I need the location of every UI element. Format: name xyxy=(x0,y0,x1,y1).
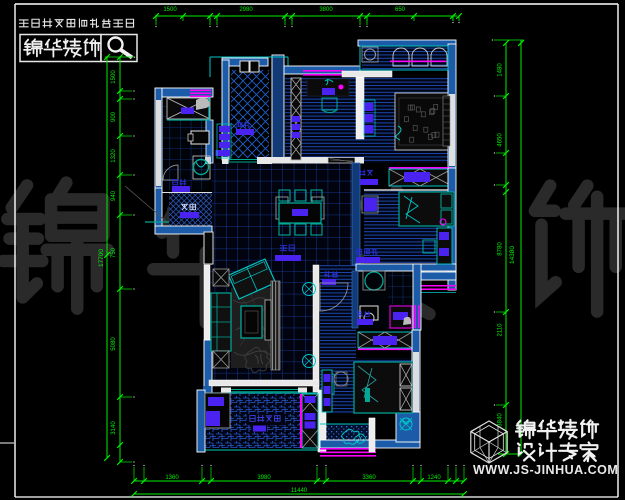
svg-text:1500: 1500 xyxy=(111,70,117,84)
svg-text:3360: 3360 xyxy=(362,475,376,481)
svg-text:3140: 3140 xyxy=(111,421,117,435)
svg-text:1480: 1480 xyxy=(498,63,504,77)
svg-text:2980: 2980 xyxy=(239,7,253,13)
svg-text:5080: 5080 xyxy=(111,337,117,351)
svg-text:14380: 14380 xyxy=(509,246,516,264)
svg-text:2110: 2110 xyxy=(498,323,504,337)
svg-text:17700: 17700 xyxy=(98,249,105,267)
svg-text:8780: 8780 xyxy=(498,242,504,256)
svg-text:900: 900 xyxy=(111,111,117,122)
svg-text:1500: 1500 xyxy=(163,7,177,13)
svg-text:4650: 4650 xyxy=(498,133,504,147)
svg-text:940: 940 xyxy=(111,190,117,201)
svg-text:11440: 11440 xyxy=(291,488,308,494)
svg-text:650: 650 xyxy=(395,7,406,13)
svg-text:750: 750 xyxy=(111,247,117,258)
svg-text:1320: 1320 xyxy=(111,149,117,163)
svg-text:1240: 1240 xyxy=(427,475,441,481)
svg-text:3840: 3840 xyxy=(498,413,504,427)
svg-text:WWW.JS-JINHUA.COM: WWW.JS-JINHUA.COM xyxy=(473,463,618,477)
svg-text:3800: 3800 xyxy=(319,7,333,13)
svg-text:1360: 1360 xyxy=(165,475,179,481)
svg-text:3980: 3980 xyxy=(257,475,271,481)
